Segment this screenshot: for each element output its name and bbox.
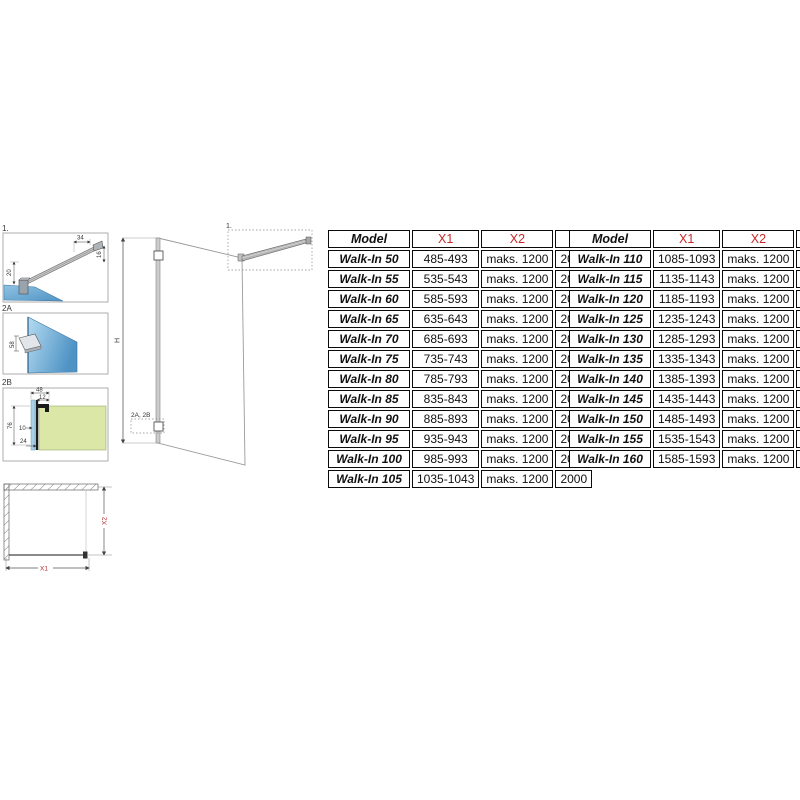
column-header-model: Model	[569, 230, 651, 248]
value-cell: 1435-1443	[653, 390, 720, 408]
model-cell: Walk-In 65	[328, 310, 410, 328]
value-cell: 2000	[796, 350, 800, 368]
column-header-x1: X1	[653, 230, 720, 248]
value-cell: 485-493	[412, 250, 479, 268]
value-cell: 685-693	[412, 330, 479, 348]
value-cell: maks. 1200	[722, 270, 794, 288]
value-cell: 1485-1493	[653, 410, 720, 428]
plan-x2-label: X2	[102, 517, 109, 525]
table-row: Walk-In 95935-943maks. 12002000	[328, 430, 592, 448]
table-row: Walk-In 70685-693maks. 12002000	[328, 330, 592, 348]
header-row: ModelX1X2H	[569, 230, 800, 248]
top-bracket	[154, 251, 163, 260]
dim-34: 34	[77, 236, 84, 242]
model-cell: Walk-In 145	[569, 390, 651, 408]
value-cell: maks. 1200	[722, 410, 794, 428]
elevation-drawing: 1. 2A, 2B H	[112, 218, 324, 474]
column-header-h: H	[796, 230, 800, 248]
glass-clamp-top	[19, 278, 30, 280]
value-cell: maks. 1200	[722, 290, 794, 308]
value-cell: maks. 1200	[481, 330, 553, 348]
model-cell: Walk-In 105	[328, 470, 410, 488]
model-cell: Walk-In 150	[569, 410, 651, 428]
dim-76: 76	[8, 422, 14, 429]
value-cell: 2000	[796, 430, 800, 448]
value-cell: 1185-1193	[653, 290, 720, 308]
table-row: Walk-In 1201185-1193maks. 12002000	[569, 290, 800, 308]
value-cell: maks. 1200	[481, 430, 553, 448]
detail-2b-drawing: 2B 48 12 76 10 24	[2, 377, 110, 463]
value-cell: maks. 1200	[481, 290, 553, 308]
bar-wall-bracket	[306, 237, 311, 244]
value-cell: 635-643	[412, 310, 479, 328]
column-header-model: Model	[328, 230, 410, 248]
model-cell: Walk-In 55	[328, 270, 410, 288]
value-cell: maks. 1200	[481, 350, 553, 368]
dim-10: 10	[19, 426, 26, 432]
dim-20: 20	[7, 269, 13, 276]
detail-1-label: 1.	[2, 224, 9, 233]
value-cell: 935-943	[412, 430, 479, 448]
value-cell: maks. 1200	[722, 330, 794, 348]
model-cell: Walk-In 70	[328, 330, 410, 348]
value-cell: 2000	[796, 250, 800, 268]
value-cell: 2000	[555, 470, 592, 488]
dim-16: 16	[97, 251, 103, 258]
support-bar-highlight	[242, 241, 306, 258]
value-cell: 1085-1093	[653, 250, 720, 268]
column-header-x2: X2	[481, 230, 553, 248]
value-cell: 985-993	[412, 450, 479, 468]
value-cell: maks. 1200	[722, 450, 794, 468]
plan-x1-label: X1	[40, 566, 48, 573]
dim-12: 12	[39, 395, 46, 401]
back-wall-plan	[4, 484, 9, 560]
table-row: Walk-In 80785-793maks. 12002000	[328, 370, 592, 388]
table-row: Walk-In 60585-593maks. 12002000	[328, 290, 592, 308]
table-row: Walk-In 90885-893maks. 12002000	[328, 410, 592, 428]
table-row: Walk-In 1551535-1543maks. 12002000	[569, 430, 800, 448]
model-cell: Walk-In 140	[569, 370, 651, 388]
value-cell: 735-743	[412, 350, 479, 368]
value-cell: 2000	[796, 410, 800, 428]
callout-1-label: 1.	[226, 223, 232, 230]
glass-clamp	[19, 280, 28, 294]
value-cell: maks. 1200	[481, 470, 553, 488]
model-cell: Walk-In 90	[328, 410, 410, 428]
dimension-table-left: ModelX1X2HWalk-In 50485-493maks. 1200200…	[326, 228, 594, 490]
table-row: Walk-In 75735-743maks. 12002000	[328, 350, 592, 368]
model-cell: Walk-In 110	[569, 250, 651, 268]
value-cell: maks. 1200	[722, 350, 794, 368]
value-cell: 2000	[796, 390, 800, 408]
table-row: Walk-In 1301285-1293maks. 12002000	[569, 330, 800, 348]
value-cell: 2000	[796, 370, 800, 388]
model-cell: Walk-In 95	[328, 430, 410, 448]
wall-section	[39, 406, 106, 450]
value-cell: 1335-1343	[653, 350, 720, 368]
glass-section	[31, 400, 35, 450]
plan-view-drawing: X1 X2	[0, 478, 145, 578]
value-cell: 1285-1293	[653, 330, 720, 348]
model-cell: Walk-In 130	[569, 330, 651, 348]
model-cell: Walk-In 155	[569, 430, 651, 448]
glass-panel-elevation	[158, 238, 245, 465]
model-cell: Walk-In 100	[328, 450, 410, 468]
value-cell: 1585-1593	[653, 450, 720, 468]
value-cell: 2000	[796, 330, 800, 348]
value-cell: maks. 1200	[481, 410, 553, 428]
value-cell: 2000	[796, 290, 800, 308]
detail-2a-drawing: 2A 58	[2, 304, 110, 376]
support-bar	[242, 239, 306, 261]
side-wall-plan	[4, 484, 98, 490]
value-cell: maks. 1200	[722, 430, 794, 448]
value-cell: maks. 1200	[481, 370, 553, 388]
model-cell: Walk-In 80	[328, 370, 410, 388]
model-cell: Walk-In 60	[328, 290, 410, 308]
value-cell: 2000	[796, 310, 800, 328]
column-header-x2: X2	[722, 230, 794, 248]
panel-end-cap	[83, 552, 88, 559]
value-cell: maks. 1200	[481, 310, 553, 328]
profile-step	[45, 408, 49, 412]
value-cell: 885-893	[412, 410, 479, 428]
table-row: Walk-In 1251235-1243maks. 12002000	[569, 310, 800, 328]
value-cell: maks. 1200	[722, 390, 794, 408]
table-row: Walk-In 1101085-1093maks. 12002000	[569, 250, 800, 268]
value-cell: maks. 1200	[481, 390, 553, 408]
model-cell: Walk-In 135	[569, 350, 651, 368]
model-cell: Walk-In 75	[328, 350, 410, 368]
value-cell: 1035-1043	[412, 470, 479, 488]
profile-flange	[36, 404, 49, 408]
value-cell: 585-593	[412, 290, 479, 308]
detail-2b-label: 2B	[2, 378, 12, 387]
value-cell: 535-543	[412, 270, 479, 288]
model-cell: Walk-In 50	[328, 250, 410, 268]
model-cell: Walk-In 160	[569, 450, 651, 468]
detail-1-drawing: 1. 34 16 20	[2, 224, 110, 304]
table-row: Walk-In 1451435-1443maks. 12002000	[569, 390, 800, 408]
value-cell: maks. 1200	[481, 250, 553, 268]
table-row: Walk-In 1401385-1393maks. 12002000	[569, 370, 800, 388]
value-cell: 785-793	[412, 370, 479, 388]
model-cell: Walk-In 120	[569, 290, 651, 308]
table-row: Walk-In 55535-543maks. 12002000	[328, 270, 592, 288]
detail-2a-label: 2A	[2, 304, 12, 313]
table-row: Walk-In 1051035-1043maks. 12002000	[328, 470, 592, 488]
dim-48: 48	[36, 388, 43, 394]
table-row: Walk-In 1351335-1343maks. 12002000	[569, 350, 800, 368]
table-row: Walk-In 1601585-1593maks. 12002000	[569, 450, 800, 468]
column-header-x1: X1	[412, 230, 479, 248]
table-row: Walk-In 85835-843maks. 12002000	[328, 390, 592, 408]
bottom-bracket	[154, 422, 163, 431]
dimension-table-right: ModelX1X2HWalk-In 1101085-1093maks. 1200…	[567, 228, 800, 470]
model-cell: Walk-In 85	[328, 390, 410, 408]
value-cell: 2000	[796, 270, 800, 288]
table-row: Walk-In 1151135-1143maks. 12002000	[569, 270, 800, 288]
callout-2ab-label: 2A, 2B	[131, 412, 151, 419]
value-cell: maks. 1200	[722, 250, 794, 268]
height-label: H	[115, 338, 122, 343]
value-cell: maks. 1200	[722, 310, 794, 328]
value-cell: 1385-1393	[653, 370, 720, 388]
value-cell: 1135-1143	[653, 270, 720, 288]
dim-24: 24	[20, 439, 27, 445]
model-cell: Walk-In 125	[569, 310, 651, 328]
value-cell: 2000	[796, 450, 800, 468]
model-cell: Walk-In 115	[569, 270, 651, 288]
table-row: Walk-In 1501485-1493maks. 12002000	[569, 410, 800, 428]
table-row: Walk-In 100985-993maks. 12002000	[328, 450, 592, 468]
wall-profile	[156, 238, 160, 443]
value-cell: maks. 1200	[722, 370, 794, 388]
value-cell: 1235-1243	[653, 310, 720, 328]
value-cell: maks. 1200	[481, 450, 553, 468]
dim-58: 58	[10, 341, 16, 348]
value-cell: 1535-1543	[653, 430, 720, 448]
table-row: Walk-In 50485-493maks. 12002000	[328, 250, 592, 268]
header-row: ModelX1X2H	[328, 230, 592, 248]
value-cell: 835-843	[412, 390, 479, 408]
table-row: Walk-In 65635-643maks. 12002000	[328, 310, 592, 328]
spec-sheet-page: { "colors": { "accent_red": "#c7292b", "…	[0, 0, 800, 800]
value-cell: maks. 1200	[481, 270, 553, 288]
